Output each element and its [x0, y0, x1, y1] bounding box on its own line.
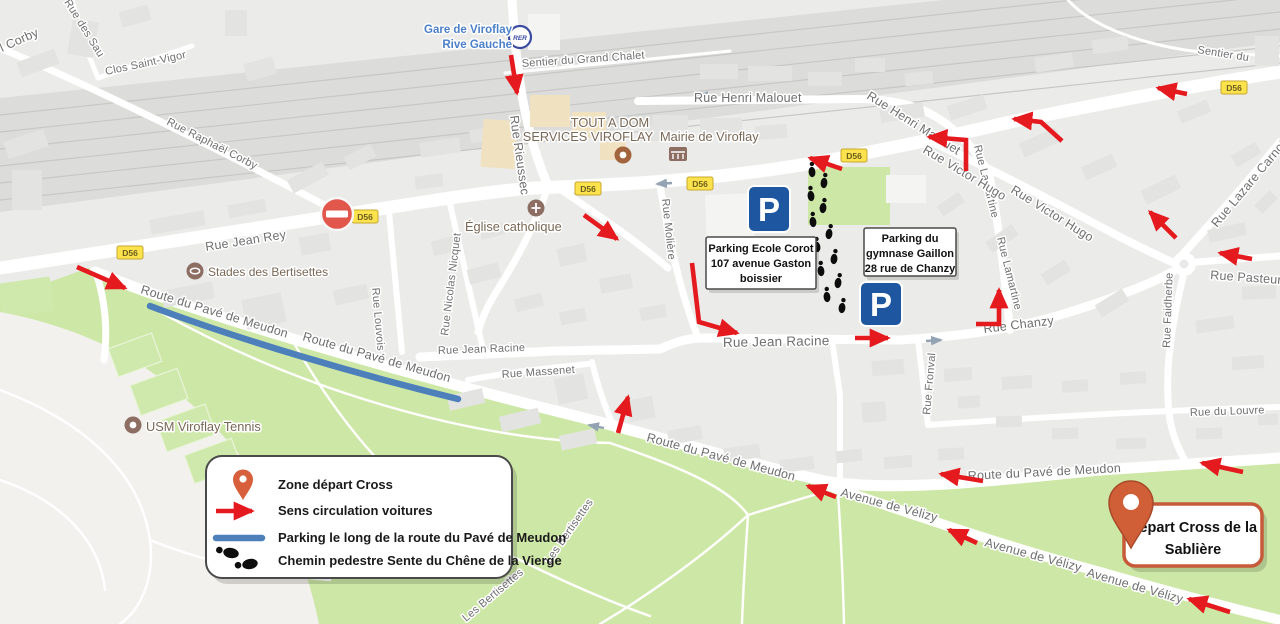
building	[700, 64, 738, 79]
station-label-2: Rive Gauche	[442, 39, 512, 51]
building	[1196, 428, 1222, 440]
parking-gaillon-box: Parking du gymnase Gaillon 28 rue de Cha…	[864, 228, 959, 280]
building	[886, 175, 926, 203]
legend-chemin-label: Chemin pedestre Sente du Chêne de la Vie…	[278, 553, 562, 568]
building	[958, 395, 981, 409]
building	[1002, 375, 1033, 390]
tout-a-dom-label-1: TOUT A DOM	[571, 115, 649, 130]
building	[748, 66, 792, 81]
building	[996, 416, 1022, 428]
svg-text:Parking du: Parking du	[882, 233, 939, 245]
svg-text:Sablière: Sablière	[1165, 542, 1221, 558]
building	[1120, 371, 1147, 385]
building	[861, 401, 886, 423]
d56-badge: D56	[1221, 81, 1247, 94]
tout-a-dom-icon	[615, 147, 632, 164]
building	[808, 72, 842, 86]
street-label-malouet-1: Rue Henri Malouet	[694, 91, 802, 105]
svg-text:gymnase Gaillon: gymnase Gaillon	[866, 248, 954, 260]
svg-text:D56: D56	[692, 179, 708, 189]
svg-text:D56: D56	[580, 184, 596, 194]
svg-text:107 avenue Gaston: 107 avenue Gaston	[711, 258, 812, 270]
svg-text:28 rue de Chanzy: 28 rue de Chanzy	[865, 263, 956, 275]
legend: Zone départ Cross Sens circulation voitu…	[206, 456, 566, 584]
building	[1062, 379, 1089, 393]
street-label-racine-2: Rue Jean Racine	[723, 333, 830, 350]
tennis-icon	[125, 417, 142, 434]
building	[530, 95, 570, 127]
parking-icon-gaillon: P	[860, 282, 902, 326]
building	[225, 10, 247, 36]
rer-station-icon: RER	[509, 26, 531, 48]
d56-badge: D56	[575, 182, 601, 195]
viroflay-cross-map: l Corby Rue des Sau Clos Saint-Vigor Rue…	[0, 0, 1280, 624]
svg-text:Parking Ecole Corot: Parking Ecole Corot	[708, 243, 813, 255]
svg-text:boissier: boissier	[740, 273, 783, 285]
building	[1242, 285, 1276, 299]
parking-icon-corot: P	[748, 186, 790, 232]
svg-text:P: P	[870, 286, 892, 323]
building	[12, 170, 42, 210]
no-entry-icon	[321, 198, 353, 230]
d56-badge: D56	[687, 177, 713, 190]
d56-badge: D56	[352, 210, 378, 223]
eglise-label: Église catholique	[465, 219, 562, 234]
legend-parking-label: Parking le long de la route du Pavé de M…	[278, 530, 566, 545]
tout-a-dom-label-2: SERVICES VIROFLAY	[523, 129, 654, 144]
d56-badge: D56	[117, 246, 143, 259]
building	[528, 14, 560, 50]
station-label-1: Gare de Viroflay	[424, 24, 513, 36]
building	[938, 447, 965, 460]
roundabout-center	[1180, 260, 1189, 269]
map-canvas: l Corby Rue des Sau Clos Saint-Vigor Rue…	[0, 0, 1280, 624]
d56-badge: D56	[841, 149, 867, 162]
tennis-label: USM Viroflay Tennis	[146, 419, 261, 434]
svg-text:Départ Cross de la: Départ Cross de la	[1129, 520, 1258, 536]
svg-text:P: P	[758, 191, 780, 228]
building	[1232, 355, 1265, 370]
building	[855, 58, 885, 72]
svg-text:D56: D56	[846, 151, 862, 161]
building	[884, 455, 913, 469]
stades-label: Stades des Bertisettes	[208, 265, 328, 279]
building	[1052, 428, 1078, 440]
svg-text:D56: D56	[1226, 83, 1242, 93]
svg-text:D56: D56	[357, 212, 373, 222]
stades-icon	[187, 263, 204, 280]
building	[1255, 36, 1279, 66]
building	[626, 396, 655, 422]
parking-corot-box: Parking Ecole Corot 107 avenue Gaston bo…	[706, 237, 819, 293]
legend-sens-label: Sens circulation voitures	[278, 503, 433, 518]
building	[944, 367, 973, 382]
school-park	[808, 167, 890, 225]
building	[872, 359, 905, 376]
eglise-icon	[528, 200, 545, 217]
building	[755, 124, 788, 140]
building	[1116, 437, 1146, 449]
mairie-label: Mairie de Viroflay	[660, 129, 759, 144]
mairie-icon	[669, 147, 687, 161]
svg-text:D56: D56	[122, 248, 138, 258]
svg-text:RER: RER	[513, 35, 527, 42]
legend-zone-label: Zone départ Cross	[278, 477, 393, 492]
